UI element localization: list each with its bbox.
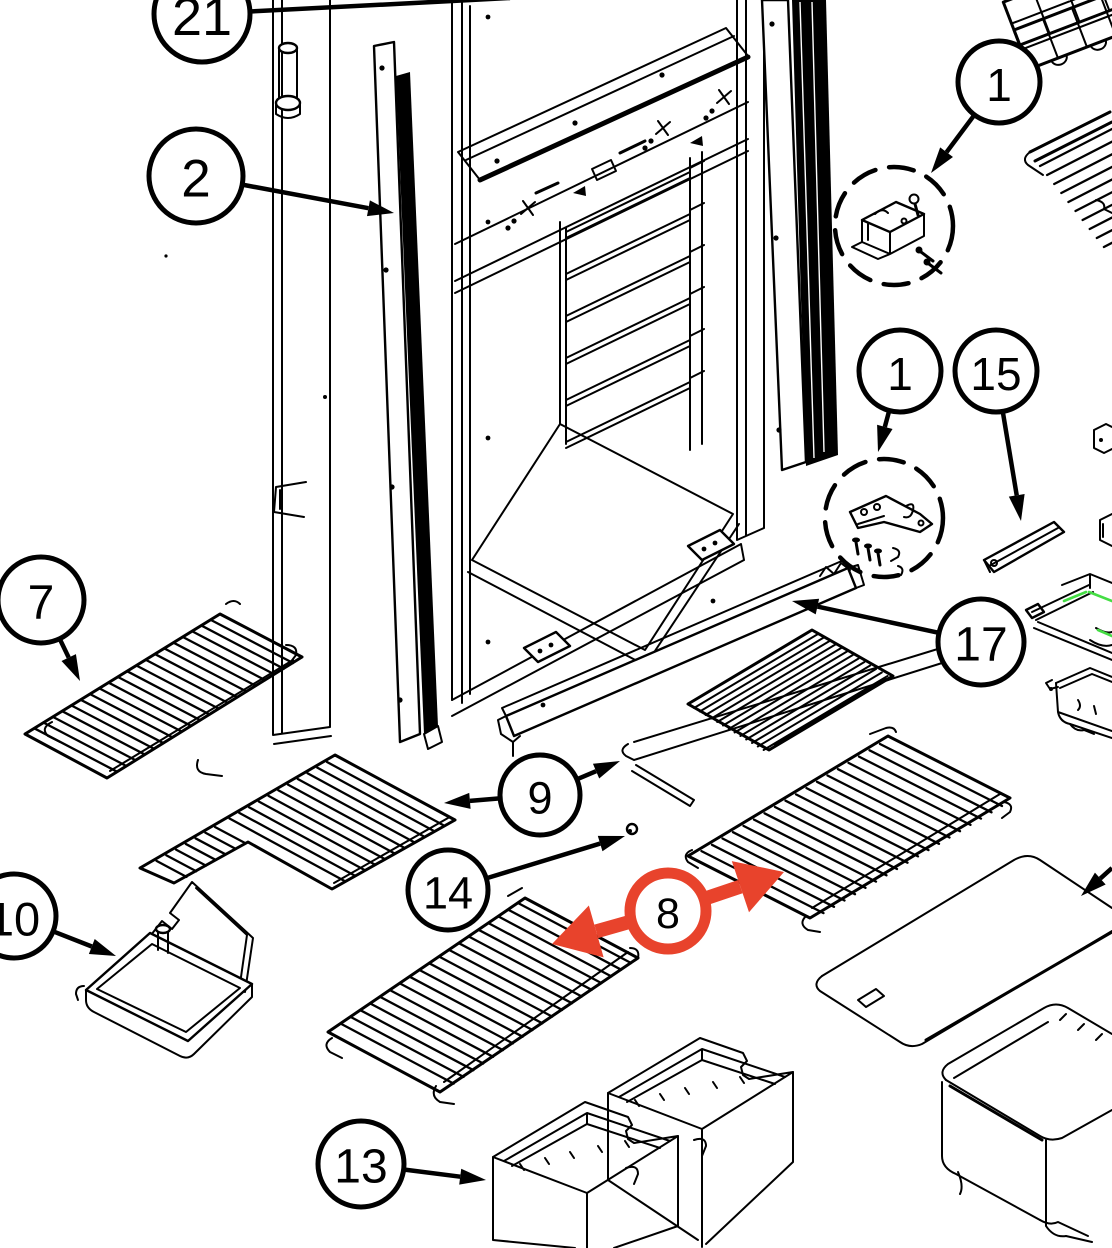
cutoff-leader-arrow <box>1081 868 1112 896</box>
kit-mid-screws <box>852 538 882 566</box>
small-bin-right-edge <box>1046 668 1112 738</box>
callout-2: 2 <box>149 129 394 223</box>
callout-number-8: 8 <box>656 890 680 938</box>
shelf-plug-14 <box>627 824 637 834</box>
wire-shelf-right <box>686 728 1011 933</box>
interior-shelf-rails <box>560 152 704 450</box>
callout-number-17: 17 <box>954 619 1007 672</box>
callout-number-1-top: 1 <box>986 59 1012 111</box>
parts-diagram-page: 212111517791481013 <box>0 0 1112 1248</box>
callout-number-13: 13 <box>334 1141 387 1194</box>
right-edge-bracket-b <box>1100 514 1112 546</box>
freezer-floor <box>458 28 748 180</box>
front-trim-strip <box>374 42 442 749</box>
callout-10: 10 <box>0 874 116 958</box>
right-door-trim <box>762 0 838 470</box>
callout-number-9: 9 <box>527 773 552 824</box>
callout-number-15: 15 <box>970 348 1021 400</box>
callout-number-1-mid: 1 <box>887 348 913 400</box>
callout-number-14: 14 <box>423 868 473 919</box>
callout-1-mid: 1 <box>859 330 941 452</box>
wire-shelf-corner-right <box>1025 112 1112 247</box>
meat-pan-tray-10 <box>76 925 252 1058</box>
callout-number-2: 2 <box>181 150 210 209</box>
kit-top-screws <box>910 195 942 274</box>
door-hinge-pin <box>276 43 300 118</box>
green-accent-tray <box>1026 574 1112 660</box>
cabinet <box>452 0 764 716</box>
hardware-kit-top-bracket <box>852 195 941 274</box>
part-15-rail <box>984 522 1064 572</box>
callout-number-10: 10 <box>0 893 40 946</box>
callout-1-top: 1 <box>931 41 1040 173</box>
parts-diagram-canvas: 212111517791481013 <box>0 0 1112 1248</box>
callout-number-7: 7 <box>28 577 55 630</box>
callout-15: 15 <box>955 330 1037 521</box>
callout-13: 13 <box>318 1121 486 1207</box>
large-bin-bottom-right <box>942 1005 1112 1243</box>
right-edge-bracket-a <box>1094 424 1112 453</box>
callout-9: 9 <box>444 755 620 835</box>
bottom-bracket-right <box>688 530 734 560</box>
callout-21: 21 <box>154 0 510 62</box>
callout-8: 8 <box>552 861 784 957</box>
callout-14: 14 <box>408 836 625 930</box>
callout-7: 7 <box>0 557 84 681</box>
crisper-bin-left <box>493 1102 678 1248</box>
callout-number-21: 21 <box>172 0 232 47</box>
